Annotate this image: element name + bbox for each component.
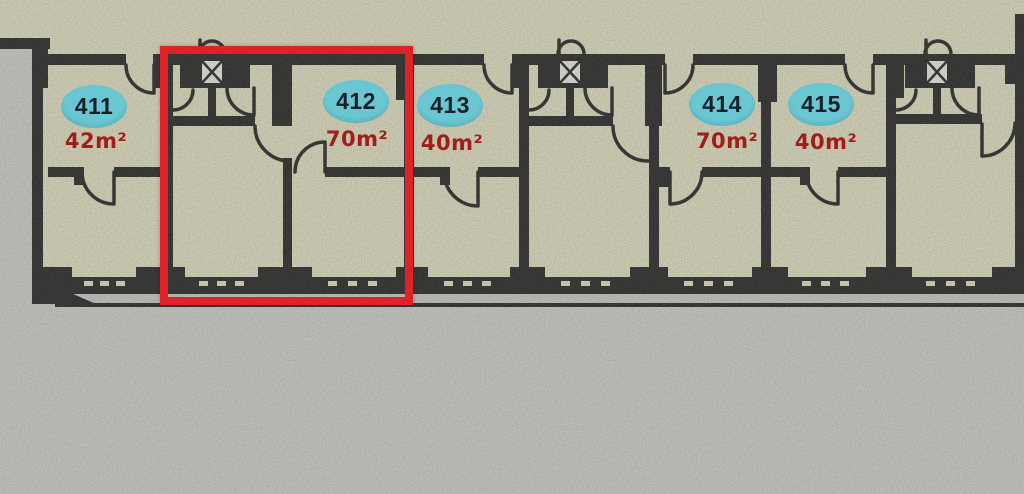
unit-area-413: 40m² <box>397 131 507 155</box>
unit-badge-414[interactable]: 414 <box>689 83 755 126</box>
unit-badge-411[interactable]: 411 <box>61 85 127 128</box>
noise-texture <box>0 0 1024 494</box>
floorplan-drawing <box>0 0 1024 494</box>
unit-area-415: 40m² <box>771 130 881 154</box>
floorplan-canvas: 411 412 413 414 415 42m² 70m² 40m² 70m² … <box>0 0 1024 494</box>
unit-badge-415[interactable]: 415 <box>788 83 854 126</box>
selected-unit-highlight <box>160 46 413 305</box>
unit-area-414: 70m² <box>672 129 782 153</box>
unit-area-411: 42m² <box>41 129 151 153</box>
unit-badge-413[interactable]: 413 <box>417 84 483 127</box>
